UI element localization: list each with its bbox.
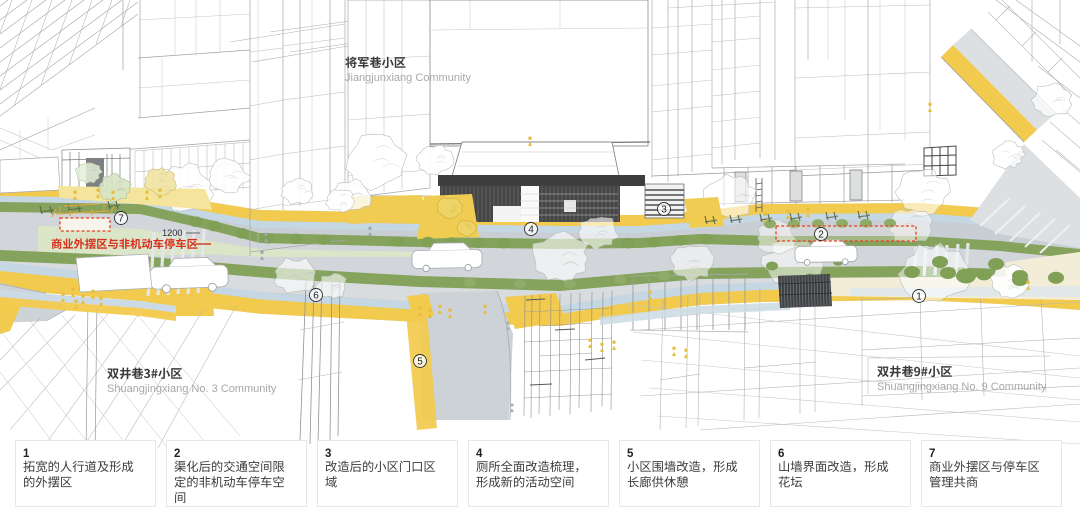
svg-text:2: 2	[174, 448, 180, 460]
svg-text:7: 7	[118, 213, 124, 224]
svg-text:1200: 1200	[162, 228, 182, 238]
svg-text:6: 6	[778, 448, 784, 460]
svg-text:Jiangjunxiang Community: Jiangjunxiang Community	[345, 72, 471, 84]
svg-text:3: 3	[325, 448, 331, 460]
svg-text:Shuangjingxiang No. 3 Communit: Shuangjingxiang No. 3 Community	[107, 383, 277, 395]
svg-text:1: 1	[23, 448, 30, 460]
svg-text:3: 3	[661, 204, 667, 215]
svg-text:5: 5	[417, 356, 423, 367]
svg-text:4: 4	[528, 224, 534, 235]
svg-text:7: 7	[929, 448, 935, 460]
svg-text:4: 4	[476, 448, 483, 460]
svg-text:6: 6	[313, 290, 319, 301]
svg-text:5: 5	[627, 448, 634, 460]
svg-text:Shuangjingxiang No. 9 Communit: Shuangjingxiang No. 9 Community	[877, 381, 1047, 393]
svg-text:1: 1	[916, 291, 922, 302]
svg-text:2: 2	[818, 229, 824, 240]
